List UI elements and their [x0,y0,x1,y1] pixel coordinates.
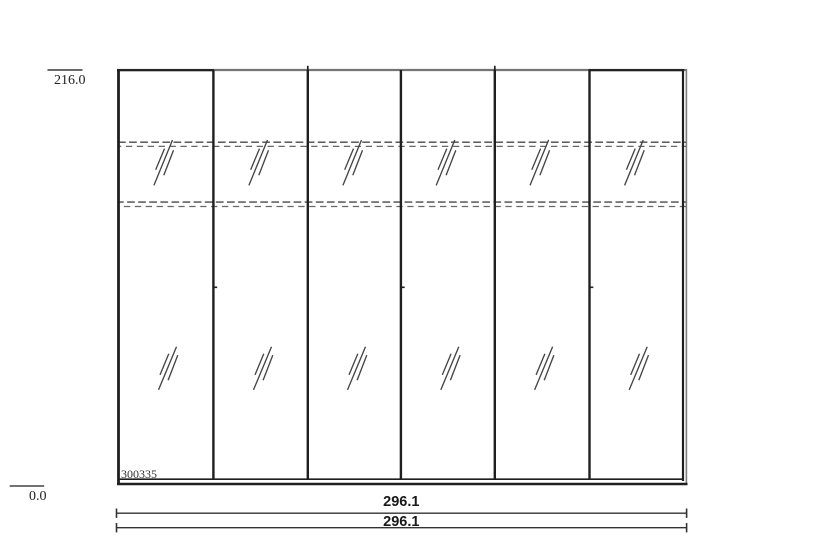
svg-text:216.0: 216.0 [54,73,86,88]
svg-text:300335: 300335 [121,467,157,481]
svg-text:0.0: 0.0 [29,489,47,504]
svg-text:296.1: 296.1 [383,494,419,510]
